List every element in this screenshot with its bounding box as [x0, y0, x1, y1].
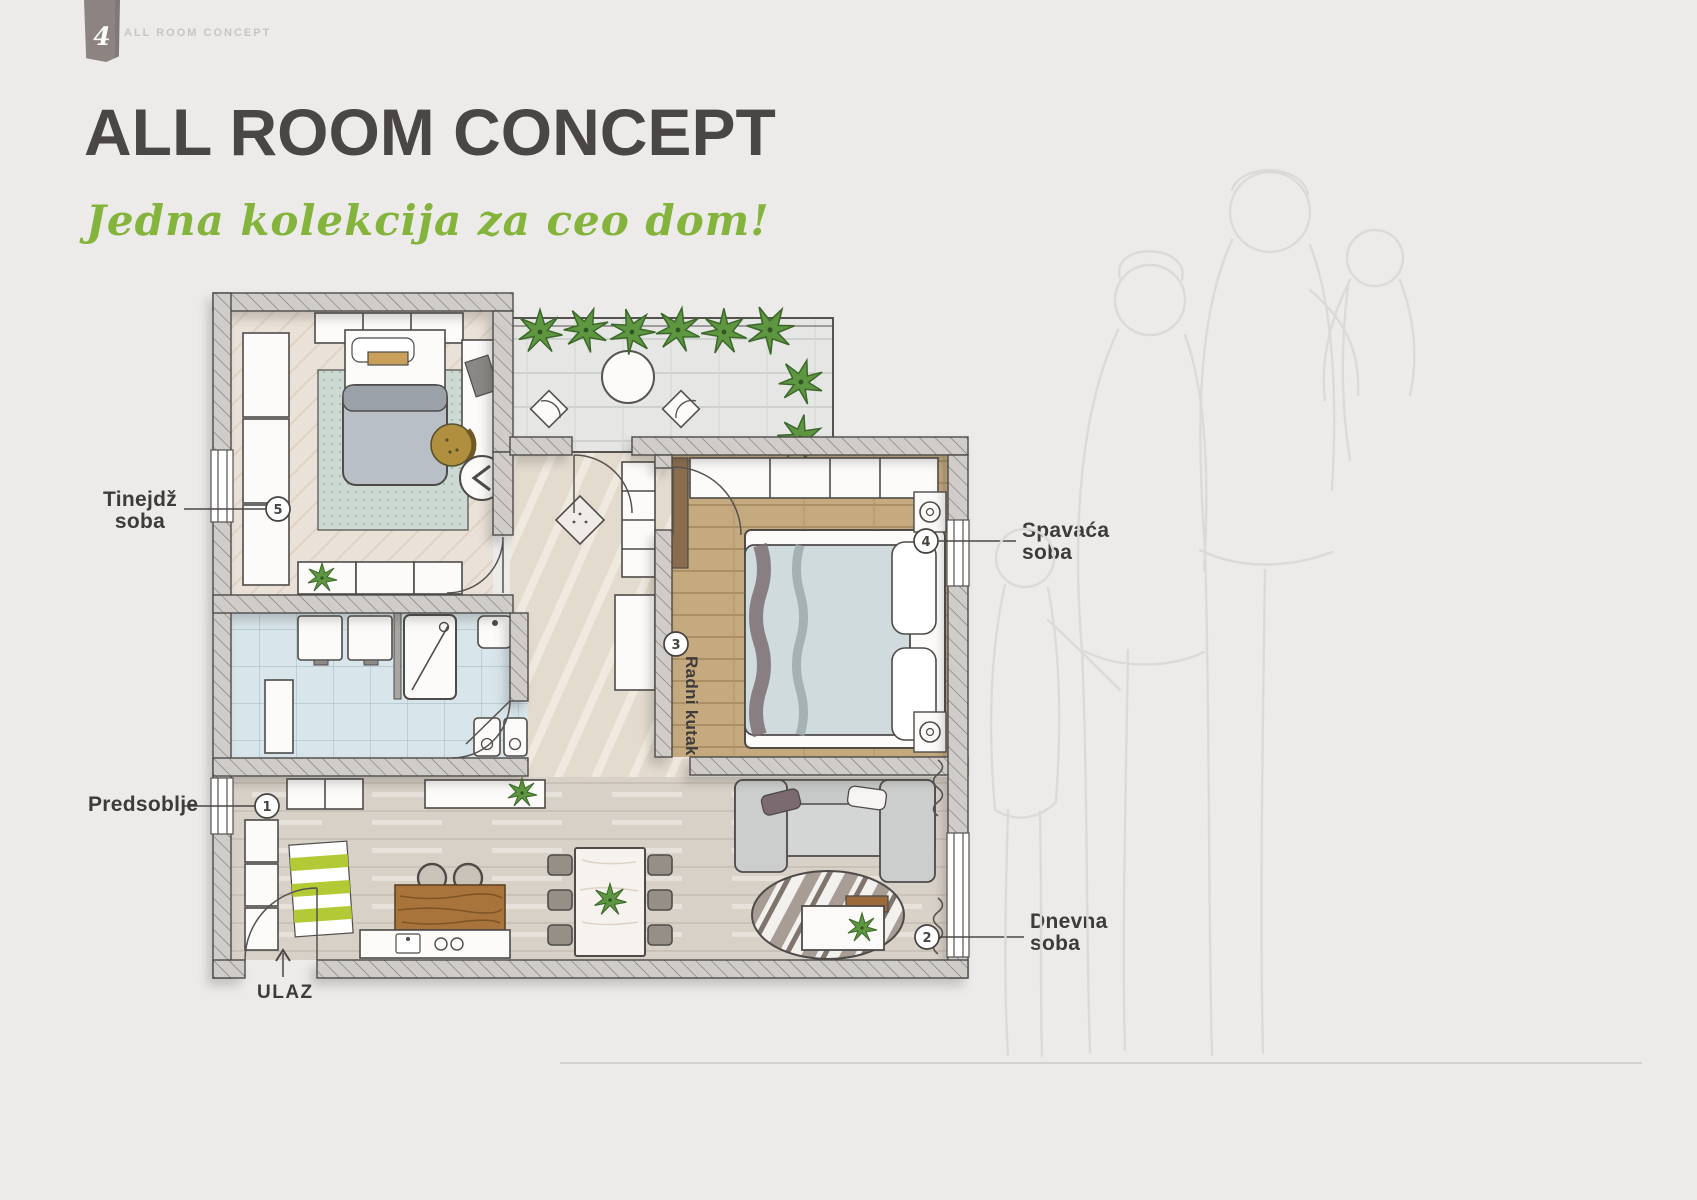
- striped-rug: [289, 841, 353, 937]
- entry-wardrobe: [245, 820, 278, 862]
- bidet: [504, 718, 527, 756]
- washer: [298, 616, 342, 660]
- page-tab-ribbon: 4: [84, 0, 120, 62]
- label-entrance: ULAZ: [257, 982, 314, 1004]
- kitchen-island: [395, 885, 505, 930]
- page-subtitle: Jedna kolekcija za ceo dom!: [86, 196, 770, 245]
- label-hallway: Predsoblje: [88, 794, 198, 816]
- family-sketch: [960, 150, 1520, 1070]
- label-teen-room: Tinejdž soba: [98, 489, 182, 533]
- living-rug-area: [752, 871, 904, 959]
- running-header: ALL ROOM CONCEPT: [124, 27, 271, 39]
- badge-number: 3: [671, 638, 680, 653]
- dining-chair: [548, 855, 572, 875]
- footer-divider: [560, 1062, 1642, 1064]
- work-desk: [615, 595, 655, 690]
- badge-number: 4: [921, 535, 930, 550]
- bed-pillow: [892, 542, 936, 634]
- page-title: ALL ROOM CONCEPT: [84, 94, 776, 170]
- brochure-page: 4 ALL ROOM CONCEPT ALL ROOM CONCEPT Jedn…: [0, 0, 1697, 1200]
- label-work-corner: Radni kutak: [680, 656, 702, 756]
- dining-set: [548, 848, 672, 956]
- bedroom-cabinet: [672, 458, 688, 568]
- badge-number: 2: [922, 931, 931, 946]
- washer: [348, 616, 392, 660]
- teen-chair: [431, 424, 473, 466]
- kitchen-sink: [396, 934, 420, 953]
- badge-number: 1: [262, 800, 271, 815]
- teen-wardrobe: [243, 333, 289, 417]
- bedside-table: [914, 712, 946, 752]
- badge-number: 5: [273, 503, 282, 518]
- bedroom-wardrobe: [690, 458, 938, 498]
- bathroom-cabinet: [265, 680, 293, 753]
- page-number: 4: [84, 22, 120, 51]
- balcony-table: [602, 351, 654, 403]
- bedside-table: [914, 492, 946, 532]
